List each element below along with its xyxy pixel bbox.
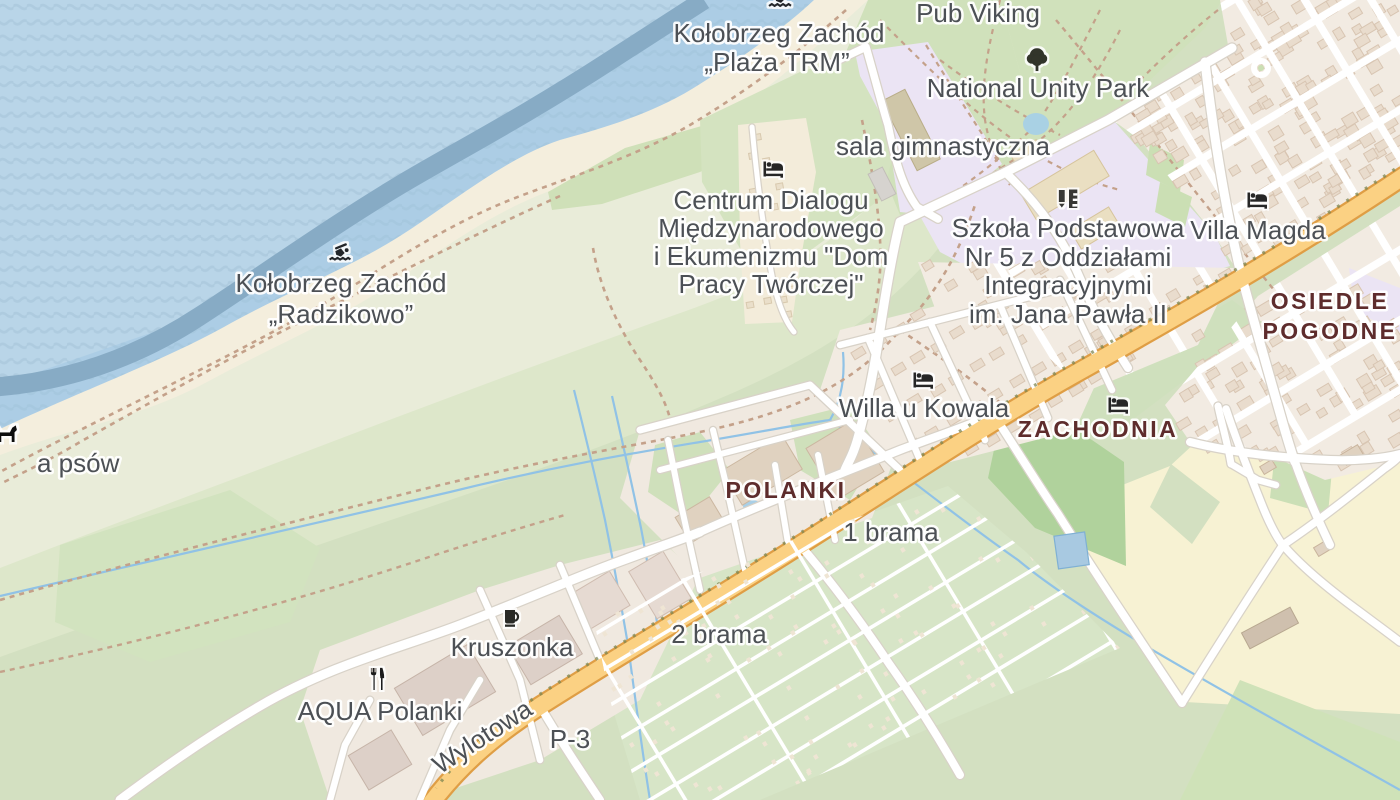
svg-text:Pub Viking: Pub Viking <box>916 0 1040 28</box>
svg-text:a psów: a psów <box>37 448 120 478</box>
svg-text:POGODNE: POGODNE <box>1262 318 1397 344</box>
svg-text:Kruszonka: Kruszonka <box>451 632 574 662</box>
svg-text:i Ekumenizmu "Dom: i Ekumenizmu "Dom <box>654 241 889 271</box>
svg-text:POLANKI: POLANKI <box>726 477 847 503</box>
svg-text:Integracyjnymi: Integracyjnymi <box>984 270 1152 300</box>
svg-text:sala gimnastyczna: sala gimnastyczna <box>836 131 1050 161</box>
svg-text:Szkoła Podstawowa: Szkoła Podstawowa <box>952 213 1185 243</box>
svg-text:OSIEDLE: OSIEDLE <box>1271 288 1389 314</box>
svg-text:ZACHODNIA: ZACHODNIA <box>1018 416 1179 442</box>
svg-text:P-3: P-3 <box>550 724 590 754</box>
svg-text:Pracy Twórczej": Pracy Twórczej" <box>678 269 863 299</box>
svg-text:Kołobrzeg Zachód: Kołobrzeg Zachód <box>235 268 446 298</box>
svg-text:„Plaża TRM”: „Plaża TRM” <box>704 47 849 77</box>
svg-text:„Radzikowo”: „Radzikowo” <box>269 299 414 329</box>
svg-text:im. Jana Pawła II: im. Jana Pawła II <box>969 299 1167 329</box>
svg-text:Villa Magda: Villa Magda <box>1190 215 1326 245</box>
svg-text:Kołobrzeg Zachód: Kołobrzeg Zachód <box>673 18 884 48</box>
svg-text:Międzynarodowego: Międzynarodowego <box>658 213 883 243</box>
svg-text:Centrum Dialogu: Centrum Dialogu <box>673 185 868 215</box>
svg-text:National Unity Park: National Unity Park <box>927 73 1151 103</box>
svg-text:2 brama: 2 brama <box>671 619 767 649</box>
svg-text:Nr 5 z Oddziałami: Nr 5 z Oddziałami <box>965 242 1172 272</box>
svg-text:AQUA Polanki: AQUA Polanki <box>298 696 463 726</box>
svg-text:Willa u Kowala: Willa u Kowala <box>839 393 1010 423</box>
svg-text:1 brama: 1 brama <box>843 517 939 547</box>
